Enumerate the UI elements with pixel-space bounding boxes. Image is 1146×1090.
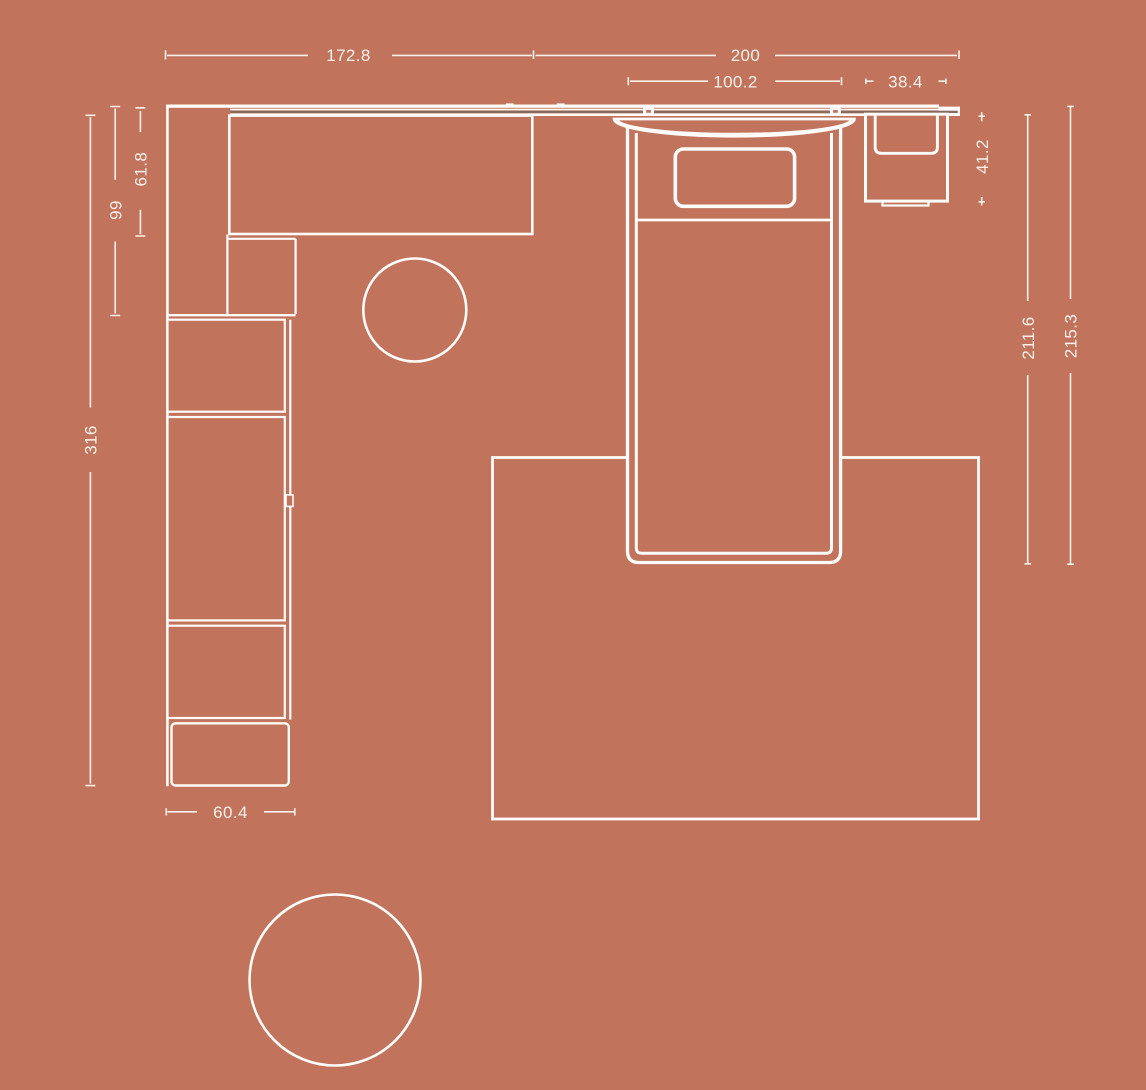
svg-text:61.8: 61.8 (132, 152, 151, 187)
svg-text:215.3: 215.3 (1062, 314, 1081, 359)
svg-text:100.2: 100.2 (713, 72, 758, 91)
svg-text:38.4: 38.4 (888, 72, 923, 91)
svg-text:172.8: 172.8 (326, 46, 371, 65)
svg-text:200: 200 (731, 46, 761, 65)
svg-text:60.4: 60.4 (213, 803, 248, 822)
svg-text:211.6: 211.6 (1019, 316, 1038, 359)
svg-text:99: 99 (106, 200, 125, 220)
svg-text:316: 316 (82, 425, 101, 455)
svg-text:41.2: 41.2 (973, 139, 992, 174)
